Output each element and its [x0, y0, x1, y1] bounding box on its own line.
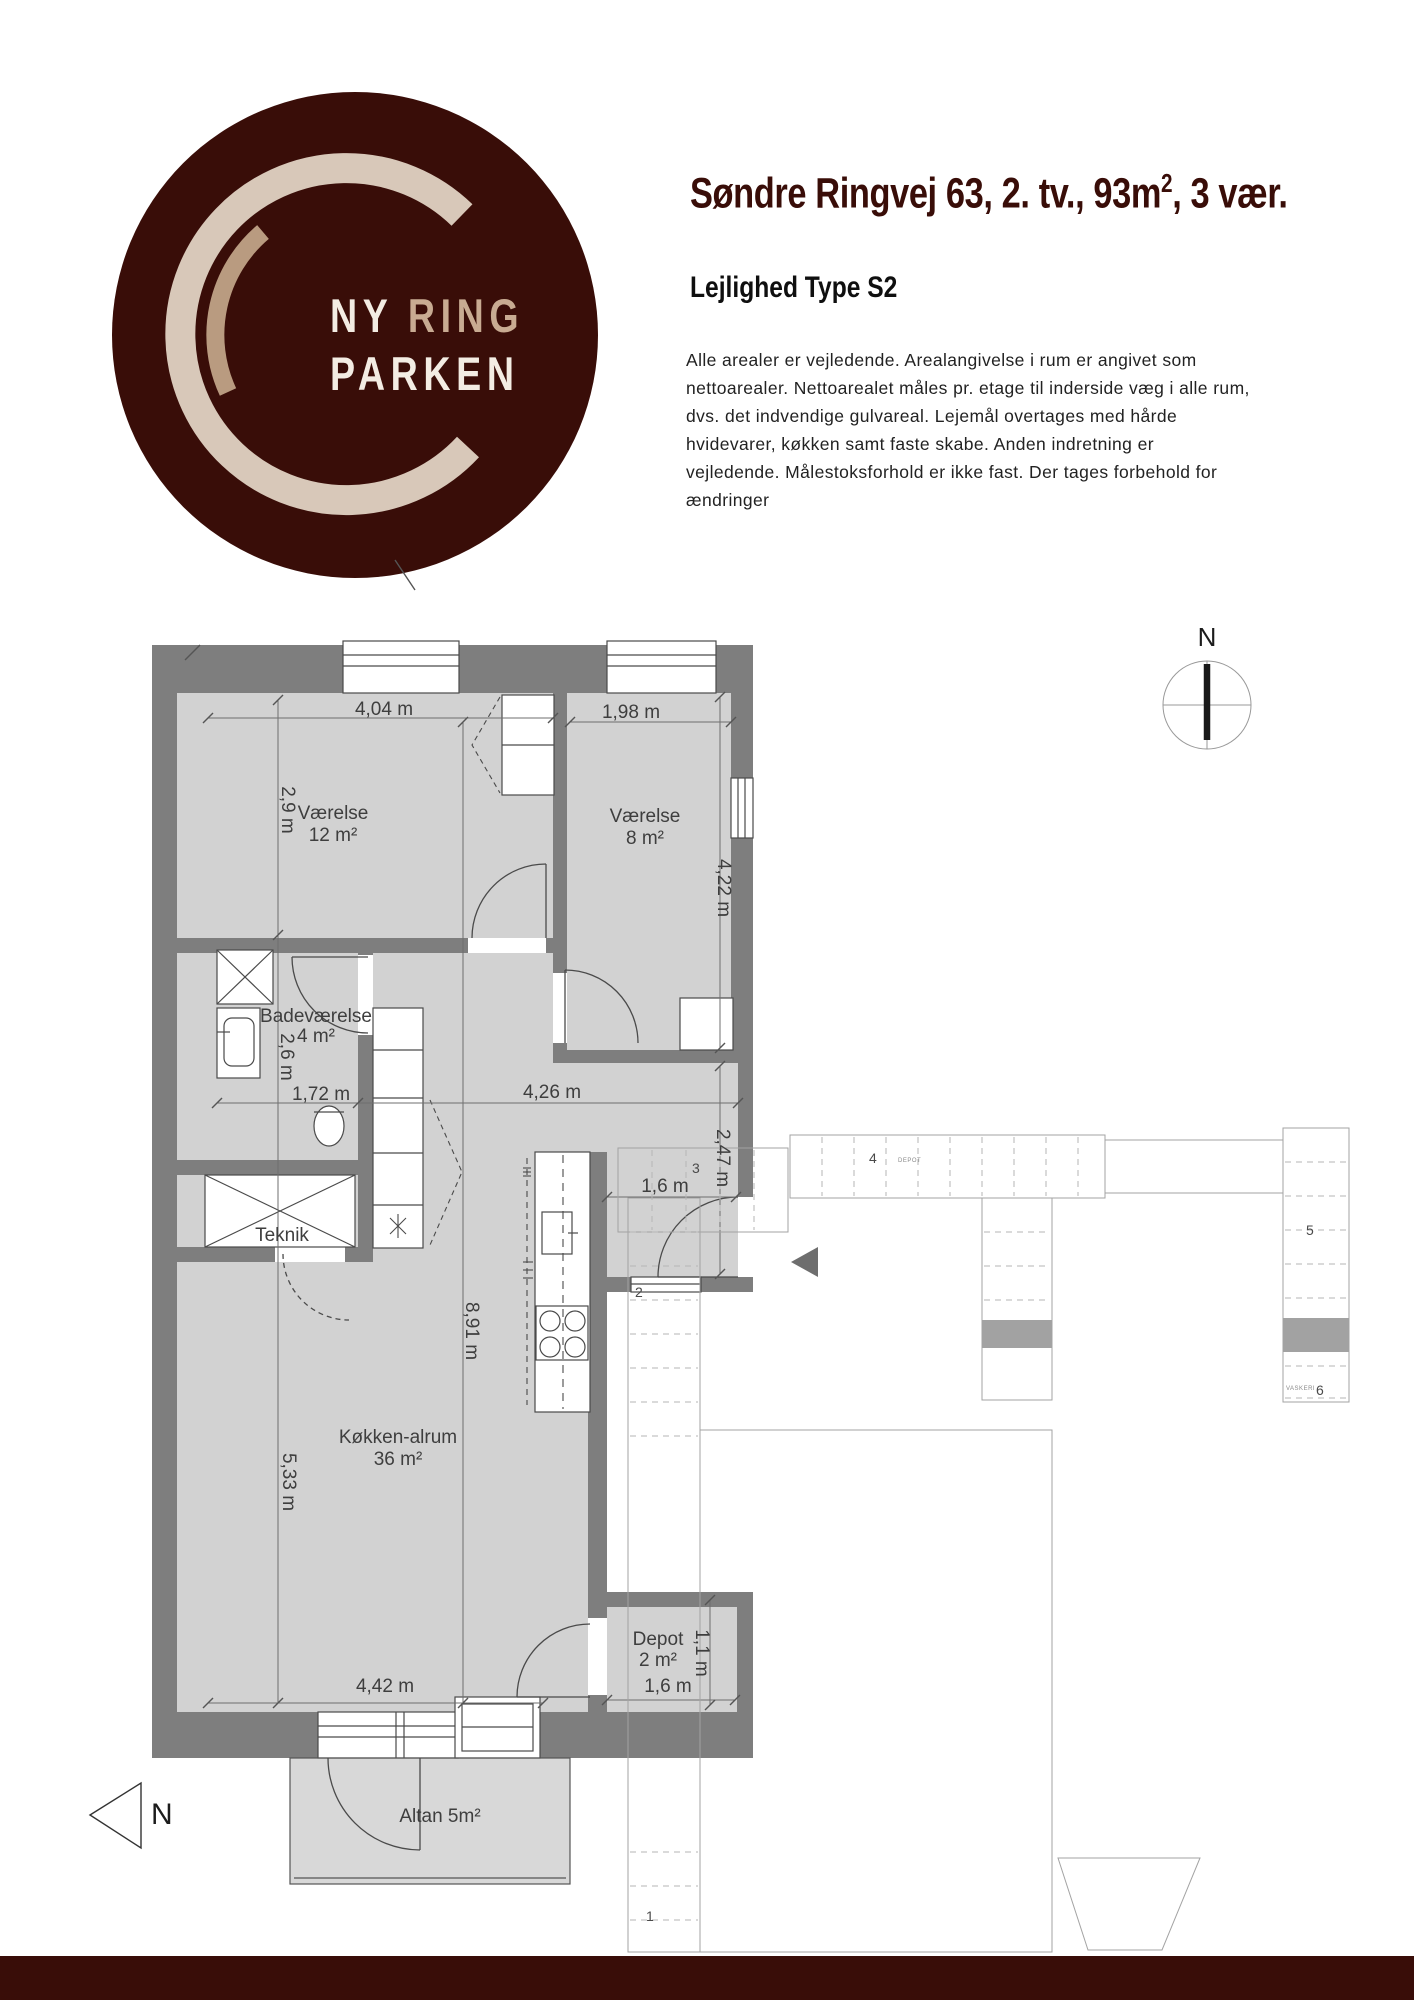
dim-198: 1,98 m	[586, 702, 676, 724]
siteplan-building-2: 2	[635, 1284, 643, 1300]
siteplan-gray-blocks	[791, 1247, 1349, 1352]
wall-right-upper	[731, 693, 753, 1063]
room-teknik-name: Teknik	[212, 1225, 352, 1247]
door-gap-v12	[468, 938, 546, 953]
compass-north-label: N	[1192, 622, 1222, 653]
dim-404: 4,04 m	[339, 699, 429, 721]
dim-11: 1,1 m	[692, 1623, 712, 1683]
compass-icon	[1163, 661, 1251, 749]
exterior-cutout	[607, 1292, 753, 1592]
room-v12-area: 12 m²	[263, 825, 403, 847]
dim-533: 5,33 m	[279, 1452, 299, 1512]
page-title: Søndre Ringvej 63, 2. tv., 93m2, 3 vær.	[690, 168, 1288, 218]
title-prefix: Søndre Ringvej 63, 2. tv., 93m	[690, 169, 1161, 217]
dim-422: 4,22 m	[714, 858, 734, 918]
logo-text-line2: PARKEN	[330, 346, 520, 401]
door-gap-v8	[553, 973, 567, 1043]
logo-text-line1: NYRING	[330, 288, 524, 343]
dim-16-hall: 1,6 m	[620, 1176, 710, 1198]
logo-word-ring: RING	[408, 289, 524, 342]
siteplan-building-3: 3	[692, 1160, 700, 1176]
wall-depot-right	[737, 1592, 753, 1712]
siteplan-building-5: 5	[1306, 1222, 1314, 1238]
location-marker-icon	[791, 1247, 818, 1277]
wall-left	[152, 693, 177, 1712]
door-gap-teknik	[275, 1247, 345, 1262]
dim-16-depot: 1,6 m	[623, 1676, 713, 1698]
dim-442: 4,42 m	[340, 1676, 430, 1698]
logo-word-ny: NY	[330, 289, 393, 342]
dim-26: 2,6 m	[277, 1027, 297, 1087]
title-superscript: 2	[1161, 168, 1172, 198]
page: NYRING PARKEN Søndre Ringvej 63, 2. tv.,…	[0, 0, 1414, 2000]
wall-depot-top	[607, 1592, 753, 1607]
room-bad-area: 4 m²	[246, 1026, 386, 1048]
footer-bar	[0, 1956, 1414, 2000]
logo-word-parken: PARKEN	[330, 347, 520, 400]
siteplan-building-1: 1	[646, 1908, 654, 1924]
room-bad-name: Badeværelse	[246, 1006, 386, 1028]
siteplan-building-4: 4	[869, 1150, 877, 1166]
room-v12-name: Værelse	[263, 803, 403, 825]
north-arrow-label: N	[151, 1798, 173, 1832]
dim-247: 2,47 m	[713, 1128, 733, 1188]
room-kokken-name: Køkken-alrum	[328, 1427, 468, 1449]
room-kokken-area: 36 m²	[328, 1449, 468, 1471]
wall-bottom	[152, 1712, 753, 1758]
title-suffix: , 3 vær.	[1172, 169, 1287, 217]
dim-891: 8,91 m	[462, 1301, 482, 1361]
north-arrow-icon	[90, 1783, 141, 1848]
dim-426: 4,26 m	[507, 1082, 597, 1104]
wall-v8-bottom	[567, 1050, 753, 1063]
disclaimer-paragraph: Alle arealer er vejledende. Arealangivel…	[686, 346, 1251, 514]
siteplan-tiny-vaskeri: VASKERI	[1286, 1386, 1315, 1392]
wall-teknik-top	[177, 1160, 373, 1175]
dim-172: 1,72 m	[276, 1084, 366, 1106]
siteplan-building-6: 6	[1316, 1382, 1324, 1398]
wall-entry-bottom	[605, 1277, 753, 1292]
door-gap-front	[738, 1197, 753, 1277]
room-v8-name: Værelse	[575, 806, 715, 828]
apartment-type-subtitle: Lejlighed Type S2	[690, 271, 897, 305]
siteplan-tiny-depot: DEPOT	[898, 1158, 921, 1164]
room-v8-area: 8 m²	[575, 828, 715, 850]
room-altan-name: Altan 5m²	[360, 1806, 520, 1828]
wall-top	[152, 645, 753, 693]
